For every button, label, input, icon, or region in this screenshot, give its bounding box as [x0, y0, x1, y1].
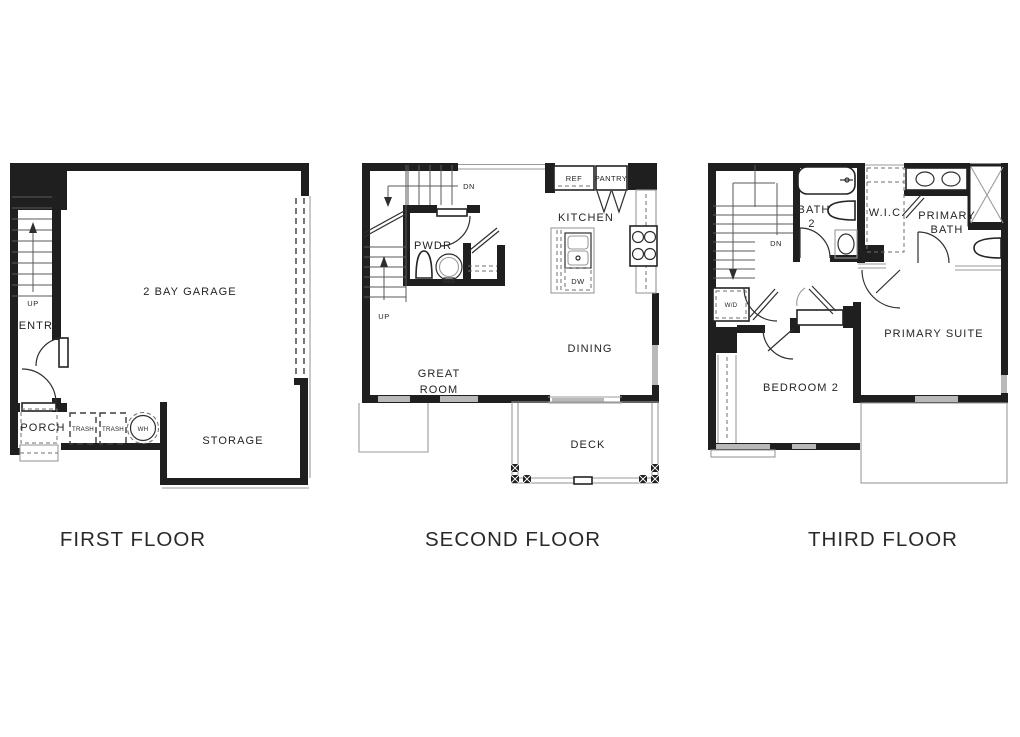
third-floor-plan: DN W/D BATH 2 W.I.C. PRIMARY BATH PRIMAR… — [708, 163, 1008, 483]
hall-closet-door — [468, 228, 499, 271]
wic-label: W.I.C. — [869, 207, 906, 219]
great-room-label-1: GREAT — [418, 368, 461, 380]
third-floor-title: THIRD FLOOR — [808, 528, 958, 551]
bath2-label-2: 2 — [808, 218, 815, 230]
entry-porch-door — [22, 369, 56, 411]
dining-label: DINING — [567, 343, 612, 355]
bedroom2-closet — [718, 355, 736, 443]
floor-plan-sheet: UP ENTRY 2 BAY GARAGE PORCH TRASH TRASH … — [0, 0, 1020, 737]
second-up-label: UP — [378, 312, 389, 321]
great-room-label-2: ROOM — [420, 384, 459, 396]
bath2-label-1: BATH — [798, 204, 831, 216]
third-floor-stairs — [713, 165, 793, 280]
first-garage-label: 2 BAY GARAGE — [143, 286, 237, 298]
first-floor-plan: UP ENTRY 2 BAY GARAGE PORCH TRASH TRASH … — [10, 163, 310, 488]
bath2-tub — [798, 167, 855, 194]
roof-below-outline — [861, 403, 1007, 483]
powder-sink — [436, 254, 462, 282]
deck-label: DECK — [571, 439, 606, 451]
kitchen-label: KITCHEN — [558, 212, 614, 224]
primary-bath-label-2: BATH — [931, 224, 964, 236]
primary-suite-door — [862, 270, 900, 308]
bath2-door — [800, 228, 830, 258]
washer-dryer-label: W/D — [725, 302, 738, 309]
primary-suite-label: PRIMARY SUITE — [884, 328, 983, 340]
entry-garage-door — [36, 338, 68, 367]
porch — [20, 409, 58, 461]
primary-bath-door — [918, 232, 949, 263]
cooktop — [630, 226, 657, 266]
first-porch-label: PORCH — [20, 422, 65, 434]
trash-right-label: TRASH — [102, 426, 124, 433]
bedroom2-label: BEDROOM 2 — [763, 382, 839, 394]
trash-left-label: TRASH — [72, 426, 94, 433]
third-dn-label: DN — [770, 239, 782, 248]
bedroom2-door — [763, 329, 793, 359]
floor-plans-drawing: UP ENTRY 2 BAY GARAGE PORCH TRASH TRASH … — [0, 0, 1020, 737]
first-up-label: UP — [27, 299, 38, 308]
first-entry-label: ENTRY — [19, 320, 62, 332]
dishwasher-label: DW — [571, 277, 585, 286]
powder-toilet — [416, 251, 432, 278]
second-dn-label: DN — [463, 182, 475, 191]
second-floor-plan: DN UP PWDR REF PANTRY KITCHEN DW GREAT R… — [359, 163, 659, 484]
second-floor-title: SECOND FLOOR — [425, 528, 601, 551]
bath2-toilet — [828, 201, 855, 220]
powder-label: PWDR — [414, 240, 452, 252]
bath2-sink — [835, 230, 857, 258]
pantry-label: PANTRY — [595, 174, 628, 183]
primary-bath-label-1: PRIMARY — [918, 210, 976, 222]
pantry-cabinet — [596, 166, 627, 212]
washer-dryer-closet — [713, 288, 778, 321]
ref-label: REF — [566, 174, 583, 183]
first-storage-label: STORAGE — [202, 435, 263, 447]
primary-bath-vanity — [906, 168, 967, 190]
primary-bath-toilet — [974, 238, 1001, 258]
garage-door — [296, 198, 304, 378]
linen-closet — [797, 286, 843, 325]
first-floor-title: FIRST FLOOR — [60, 528, 206, 551]
water-heater-label: WH — [138, 426, 149, 433]
